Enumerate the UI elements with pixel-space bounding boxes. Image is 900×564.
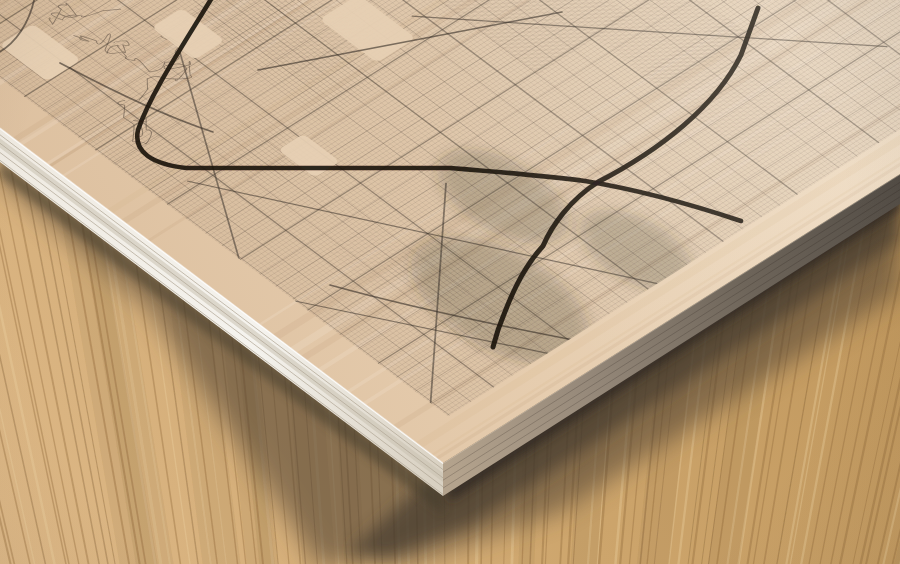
vignette bbox=[0, 0, 900, 564]
scene-canvas bbox=[0, 0, 900, 564]
product-photo bbox=[0, 0, 900, 564]
